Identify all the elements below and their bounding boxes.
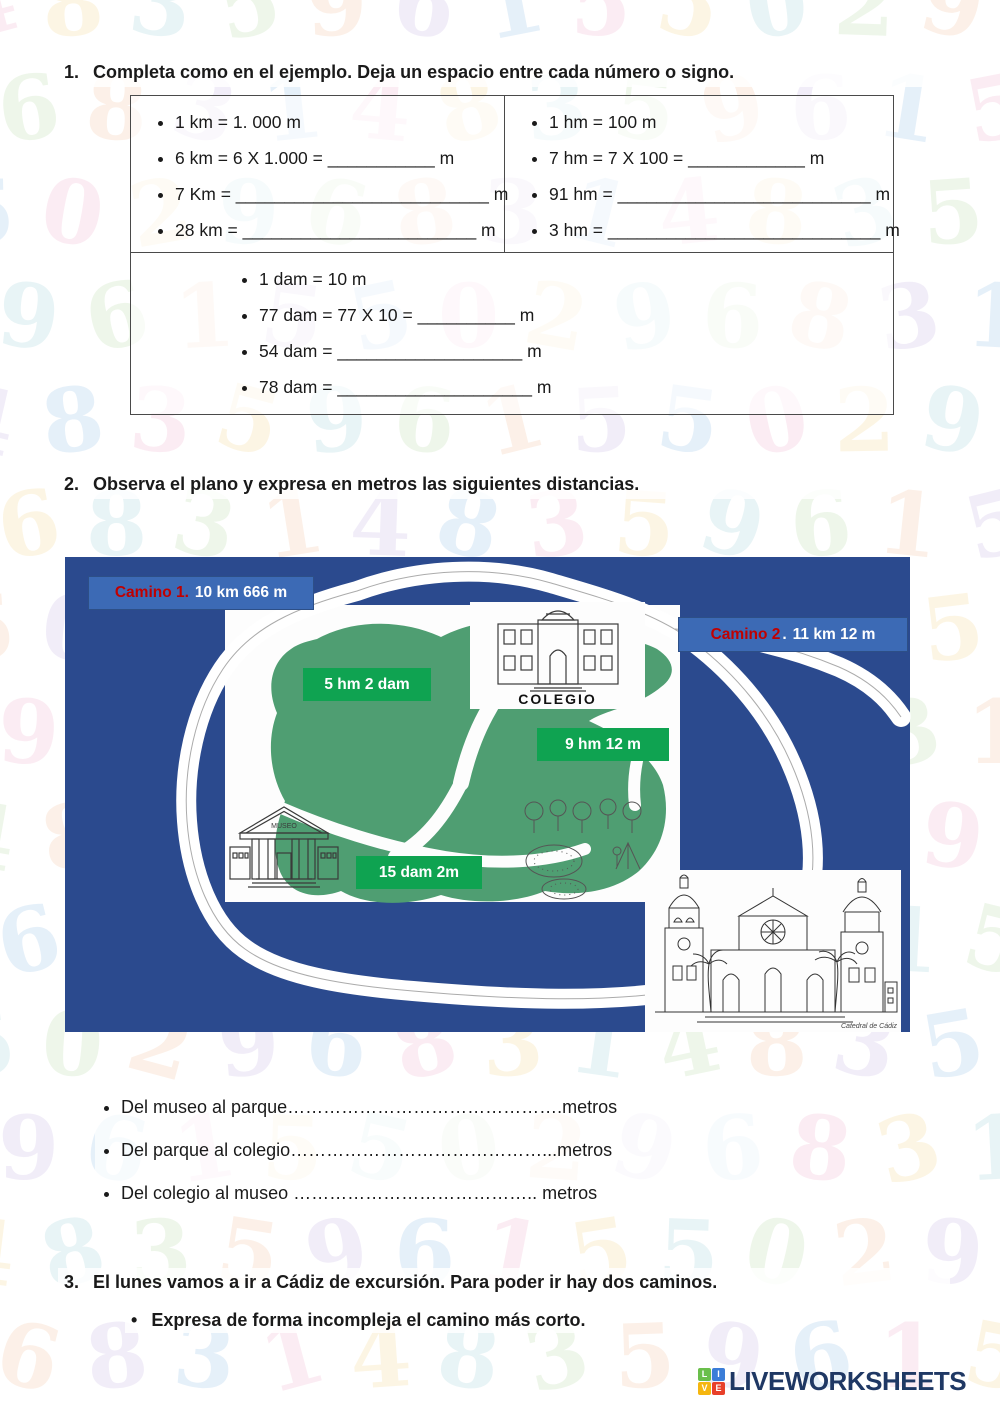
- distance-questions: Del museo al parque……………………………………….metro…: [95, 1086, 775, 1215]
- exercise1-title: 1. Completa como en el ejemplo. Deja un …: [58, 58, 954, 87]
- liveworksheets-wordmark: LIVEWORKSHEETS: [729, 1366, 966, 1397]
- conversion-table: 1 km = 1. 000 m 6 km = 6 X 1.000 = _____…: [130, 95, 894, 415]
- exercise1-number: 1.: [64, 61, 79, 84]
- exercise3-title-text: El lunes vamos a ir a Cádiz de excursión…: [93, 1271, 717, 1294]
- hm-column: 1 hm = 100 m 7 hm = 7 X 100 = __________…: [505, 96, 900, 252]
- cathedral-caption: Catedral de Cádiz: [841, 1023, 898, 1030]
- liveworksheets-logo[interactable]: L I V E LIVEWORKSHEETS: [698, 1366, 966, 1397]
- hm-answer-line-3[interactable]: 3 hm = ____________________________ m: [549, 212, 900, 248]
- hm-example-line: 1 hm = 100 m: [549, 104, 900, 140]
- exercise2-title-text: Observa el plano y expresa en metros las…: [93, 473, 639, 496]
- distance-label-3: 15 dam 2m: [356, 856, 482, 889]
- hm-answer-line-1[interactable]: 7 hm = 7 X 100 = ____________ m: [549, 140, 900, 176]
- question-colegio-museo[interactable]: Del colegio al museo ………………………………….. met…: [121, 1172, 775, 1215]
- dam-answer-line-3[interactable]: 78 dam = ____________________ m: [259, 369, 893, 405]
- exercise3-subtask: • Expresa de forma incompleja el camino …: [125, 1308, 591, 1333]
- camino2-separator: .: [782, 626, 786, 644]
- camino2-label: Camino 2. 11 km 12 m: [678, 617, 908, 652]
- conversion-table-row1: 1 km = 1. 000 m 6 km = 6 X 1.000 = _____…: [131, 96, 893, 253]
- question-parque-colegio[interactable]: Del parque al colegio……………………………………...me…: [121, 1129, 775, 1172]
- distance-label-1: 5 hm 2 dam: [303, 668, 431, 701]
- camino1-value: 10 km 666 m: [195, 584, 287, 602]
- liveworksheets-tiles-icon: L I V E: [698, 1368, 725, 1395]
- bullet-icon: •: [131, 1310, 137, 1331]
- km-answer-line-3[interactable]: 28 km = ________________________ m: [175, 212, 504, 248]
- school-caption: COLEGIO: [470, 691, 645, 707]
- camino2-value: 11 km 12 m: [793, 626, 876, 644]
- museum-caption: MUSEO: [271, 823, 297, 830]
- exercise3-number: 3.: [64, 1271, 79, 1294]
- exercise2-title: 2. Observa el plano y expresa en metros …: [58, 470, 870, 499]
- park-trees-icon: [520, 795, 650, 902]
- km-column: 1 km = 1. 000 m 6 km = 6 X 1.000 = _____…: [131, 96, 505, 252]
- question-museo-parque[interactable]: Del museo al parque……………………………………….metro…: [121, 1086, 775, 1129]
- exercise3-title: 3. El lunes vamos a ir a Cádiz de excurs…: [58, 1268, 950, 1297]
- camino1-label: Camino 1. 10 km 666 m: [88, 576, 314, 610]
- camino1-name: Camino 1.: [115, 584, 189, 602]
- school-building: COLEGIO: [470, 602, 645, 709]
- km-answer-line-1[interactable]: 6 km = 6 X 1.000 = ___________ m: [175, 140, 504, 176]
- cathedral-building: Catedral de Cádiz: [645, 870, 901, 1032]
- park-area: [520, 795, 650, 902]
- exercise2-number: 2.: [64, 473, 79, 496]
- museum-icon: MUSEO: [228, 795, 340, 901]
- camino2-name: Camino 2: [711, 626, 781, 644]
- dam-answer-line-1[interactable]: 77 dam = 77 X 10 = __________ m: [259, 297, 893, 333]
- dam-example-line: 1 dam = 10 m: [259, 261, 893, 297]
- exercise3-subtask-text: Expresa de forma incompleja el camino má…: [151, 1310, 585, 1331]
- city-map: COLEGIO: [65, 557, 910, 1032]
- dam-row: 1 dam = 10 m 77 dam = 77 X 10 = ________…: [131, 261, 893, 405]
- distance-label-2: 9 hm 12 m: [537, 728, 669, 761]
- exercise1-title-text: Completa como en el ejemplo. Deja un esp…: [93, 61, 734, 84]
- hm-answer-line-2[interactable]: 91 hm = __________________________ m: [549, 176, 900, 212]
- km-example-line: 1 km = 1. 000 m: [175, 104, 504, 140]
- worksheet-page: 4835961550296831483596155029683148359615…: [0, 0, 1000, 1413]
- cathedral-icon: Catedral de Cádiz: [645, 870, 901, 1032]
- dam-answer-line-2[interactable]: 54 dam = ___________________ m: [259, 333, 893, 369]
- km-answer-line-2[interactable]: 7 Km = __________________________ m: [175, 176, 504, 212]
- museum-building: MUSEO: [228, 795, 340, 901]
